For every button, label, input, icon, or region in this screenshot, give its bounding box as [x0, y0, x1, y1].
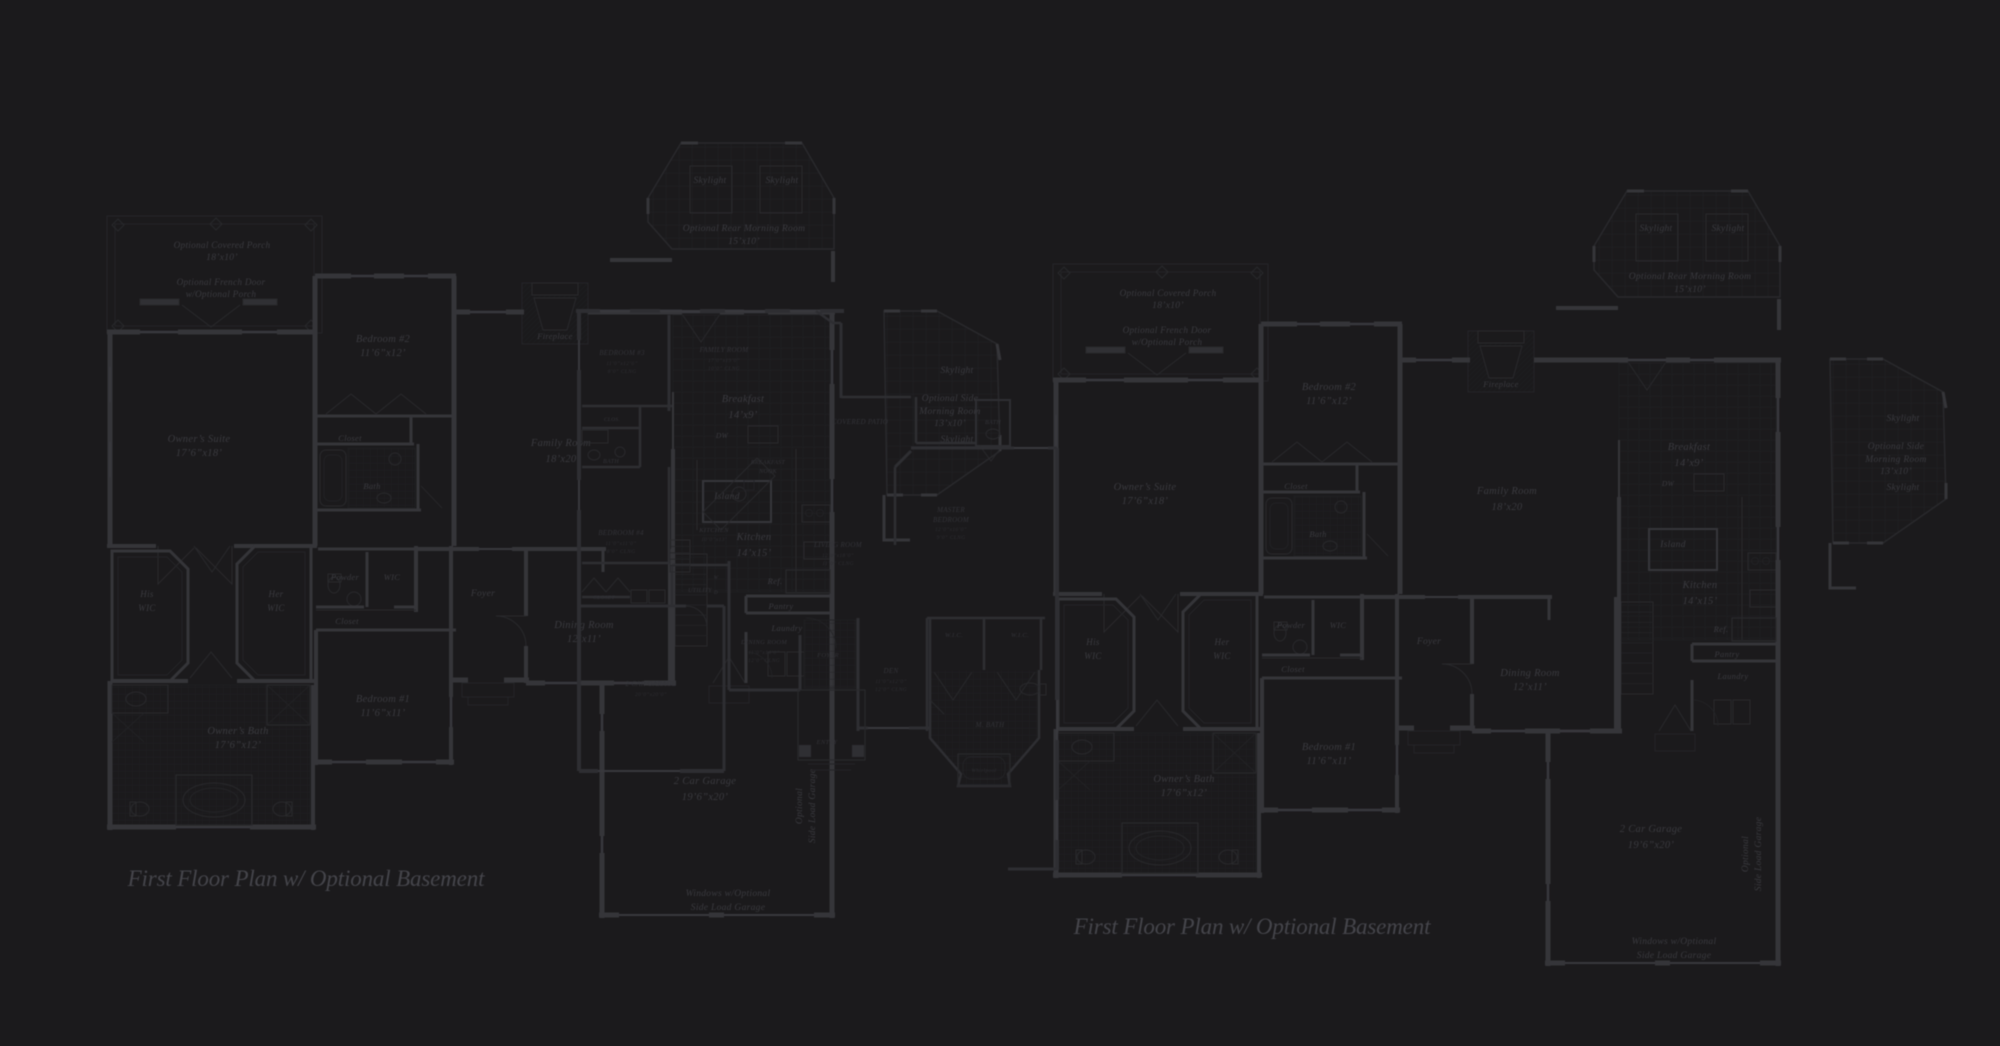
svg-text:11’0” CLNG: 11’0” CLNG [822, 561, 853, 567]
svg-text:FOYER: FOYER [816, 652, 839, 659]
svg-text:BATH: BATH [985, 420, 1001, 426]
svg-text:2 CAR GARAGE: 2 CAR GARAGE [625, 680, 676, 688]
svg-text:11’0”x12’6”: 11’0”x12’6” [606, 361, 638, 367]
svg-text:BATH: BATH [603, 459, 619, 465]
svg-text:NOOK: NOOK [758, 469, 778, 475]
svg-text:Whirlpool: Whirlpool [971, 768, 996, 774]
svg-text:UTILITY: UTILITY [688, 588, 712, 594]
svg-text:CLOSET: CLOSET [593, 595, 615, 601]
svg-text:CLOS.: CLOS. [604, 417, 620, 423]
svg-text:10’0”x13’: 10’0”x13’ [701, 537, 727, 543]
svg-text:8’0” CLNG: 8’0” CLNG [607, 549, 636, 555]
svg-text:BREAKFAST: BREAKFAST [751, 460, 786, 466]
svg-text:ENTRY: ENTRY [816, 739, 839, 746]
svg-text:11’0”x14’0”: 11’0”x14’0” [748, 649, 780, 656]
svg-text:D: D [713, 591, 718, 596]
svg-text:M. BATH: M. BATH [975, 721, 1005, 729]
svg-text:8’0” CLNG: 8’0” CLNG [608, 369, 637, 375]
svg-text:KITCHEN: KITCHEN [698, 527, 729, 534]
svg-text:W.I.C.: W.I.C. [945, 632, 963, 639]
svg-text:LIVING ROOM: LIVING ROOM [813, 541, 863, 549]
svg-text:W: W [714, 576, 719, 581]
svg-text:COVERED PATIO: COVERED PATIO [832, 418, 888, 426]
svg-text:12’0” CLNG: 12’0” CLNG [875, 687, 907, 693]
svg-text:12’0”x18’0”: 12’0”x18’0” [822, 553, 854, 559]
svg-text:FAMILY ROOM: FAMILY ROOM [699, 346, 750, 354]
svg-text:12’0”x16’0”: 12’0”x16’0” [935, 527, 967, 533]
svg-text:BEDROOM: BEDROOM [933, 516, 970, 524]
svg-text:BEDROOM #4: BEDROOM #4 [598, 529, 644, 537]
svg-text:20’0”x20’0”: 20’0”x20’0” [635, 692, 667, 698]
svg-text:DINING ROOM: DINING ROOM [740, 639, 787, 646]
svg-text:BEDROOM #3: BEDROOM #3 [599, 349, 645, 357]
svg-text:MASTER: MASTER [936, 506, 965, 514]
svg-text:9’0” CLNG: 9’0” CLNG [937, 535, 966, 541]
svg-text:W.I.C.: W.I.C. [1011, 632, 1029, 639]
svg-text:11’0”x11’0”: 11’0”x11’0” [605, 541, 636, 547]
svg-text:10’0” CLNG: 10’0” CLNG [708, 366, 740, 372]
svg-text:12’0” CLNG: 12’0” CLNG [748, 658, 780, 664]
svg-text:17’0”x19’0”: 17’0”x19’0” [708, 358, 740, 364]
svg-text:11’0”x12’0”: 11’0”x12’0” [875, 679, 907, 685]
svg-text:DEN: DEN [883, 667, 899, 675]
